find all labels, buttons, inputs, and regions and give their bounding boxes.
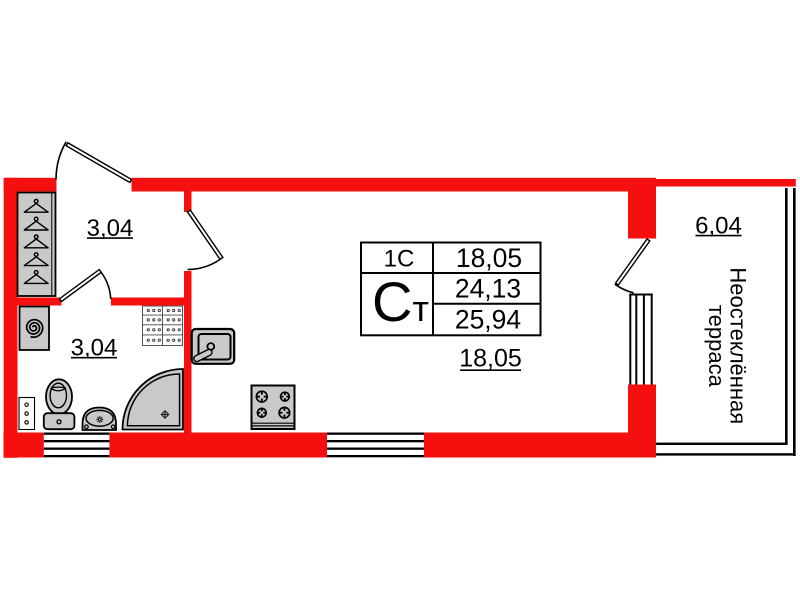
svg-text:18,05: 18,05 xyxy=(456,243,522,273)
svg-text:18,05: 18,05 xyxy=(459,345,522,373)
svg-text:24,13: 24,13 xyxy=(455,273,521,303)
svg-text:терраса: терраса xyxy=(704,305,729,388)
svg-text:25,94: 25,94 xyxy=(455,304,521,334)
svg-text:1С: 1С xyxy=(384,246,415,273)
